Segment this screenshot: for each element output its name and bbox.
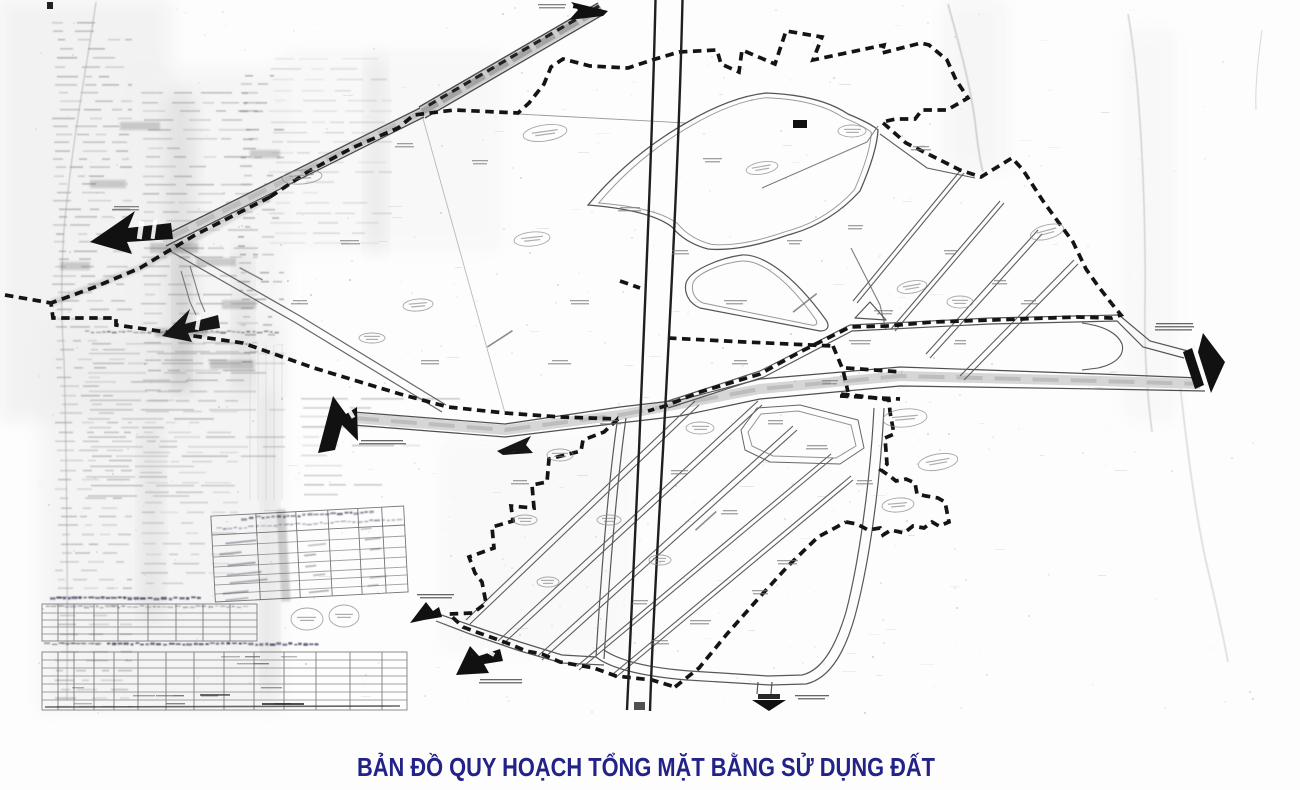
svg-text:BẢN ĐỒ QUY HOẠCH TỔNG MẶT BẰNG: BẢN ĐỒ QUY HOẠCH TỔNG MẶT BẰNG SỬ DỤNG Đ… xyxy=(357,752,935,782)
